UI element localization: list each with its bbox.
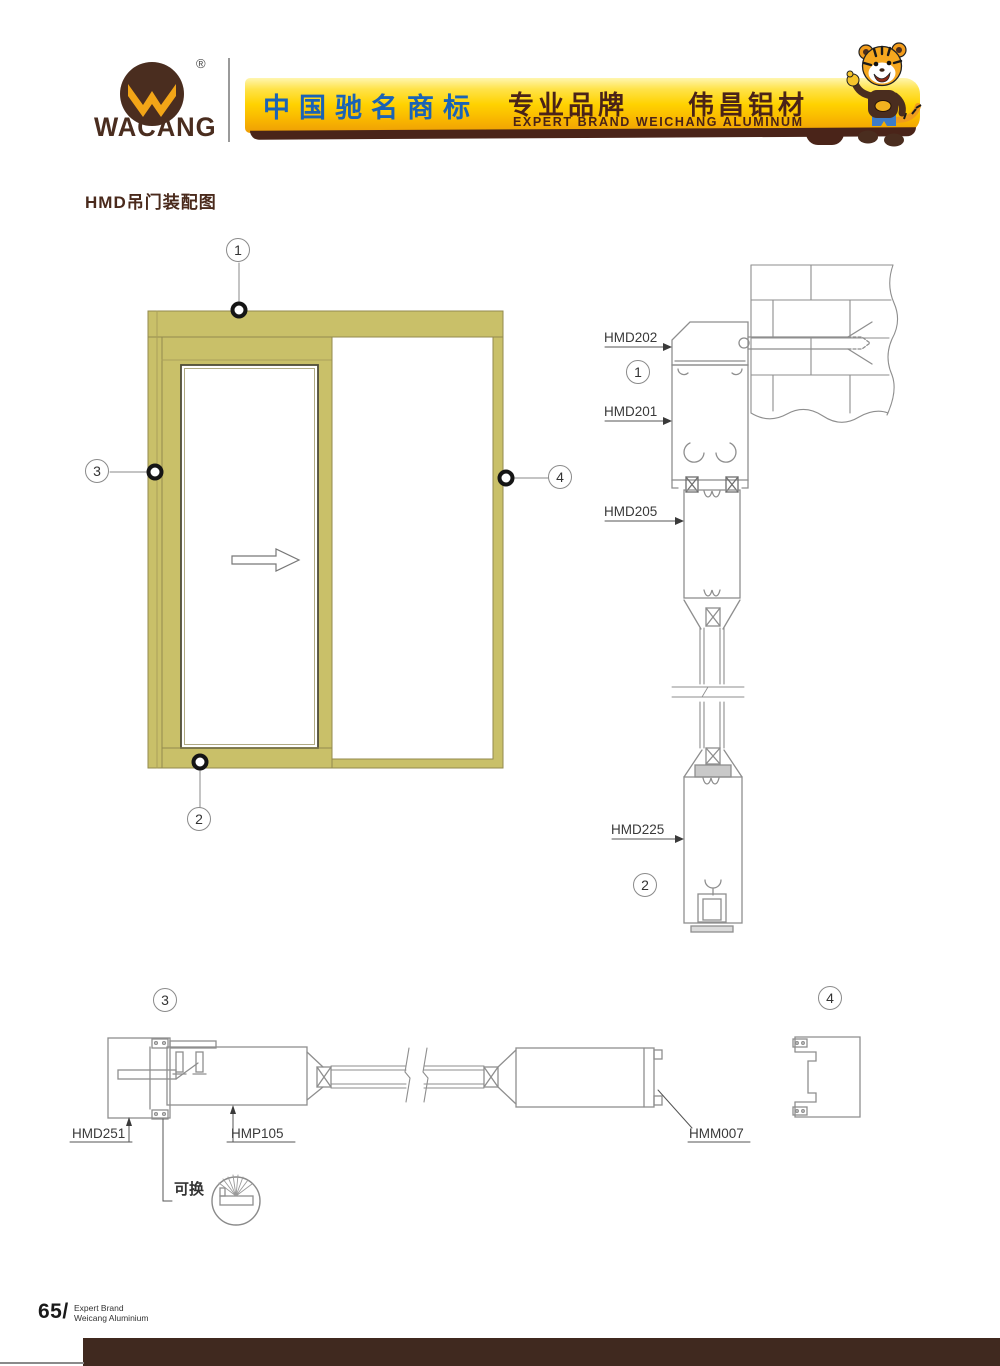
callout-2-elevation: 2 <box>187 807 211 831</box>
footer-tagline-1: Expert Brand <box>74 1303 124 1313</box>
header-divider <box>228 58 230 142</box>
glass-section <box>672 628 744 748</box>
callout-1-section: 1 <box>626 360 650 384</box>
channel-profile-4 <box>793 1037 860 1117</box>
brush-seal-detail <box>212 1175 260 1225</box>
label-hmd202: HMD202 <box>604 330 657 345</box>
label-hmd251: HMD251 <box>72 1126 125 1141</box>
callout-4-section: 4 <box>818 986 842 1010</box>
label-hmm007: HMM007 <box>689 1126 744 1141</box>
footer-bar <box>83 1338 1000 1366</box>
label-hmd205: HMD205 <box>604 504 657 519</box>
catalog-page: ® WACANG 中国驰名商标 专业品牌 伟昌铝材 EXPERT BRAND W… <box>0 0 1000 1366</box>
elevation-diagram <box>110 263 548 807</box>
registered-mark: ® <box>196 56 206 71</box>
tiger-mascot-icon <box>830 36 930 148</box>
wall-hatch <box>751 265 898 422</box>
footer-tagline-2: Weicang Aluminium <box>74 1313 149 1323</box>
callout-4-elevation: 4 <box>548 465 572 489</box>
anchor-bolt <box>739 322 872 364</box>
label-hmp105: HMP105 <box>231 1126 284 1141</box>
banner-right-en-text: EXPERT BRAND WEICHANG ALUMINUM <box>513 115 804 129</box>
page-title: HMD吊门装配图 <box>85 188 217 213</box>
page-number: 65/ <box>38 1300 69 1324</box>
callout-1-elevation: 1 <box>226 238 250 262</box>
label-hmd225: HMD225 <box>611 822 664 837</box>
footer-hairline <box>0 1362 84 1364</box>
callout-3-section: 3 <box>153 988 177 1012</box>
callout-2-section: 2 <box>633 873 657 897</box>
banner-left-text: 中国驰名商标 <box>263 86 479 125</box>
brand-wordmark: WACANG <box>94 112 217 143</box>
callout-3-elevation: 3 <box>85 459 109 483</box>
replaceable-note: 可换 <box>174 1178 204 1199</box>
label-hmd201: HMD201 <box>604 404 657 419</box>
